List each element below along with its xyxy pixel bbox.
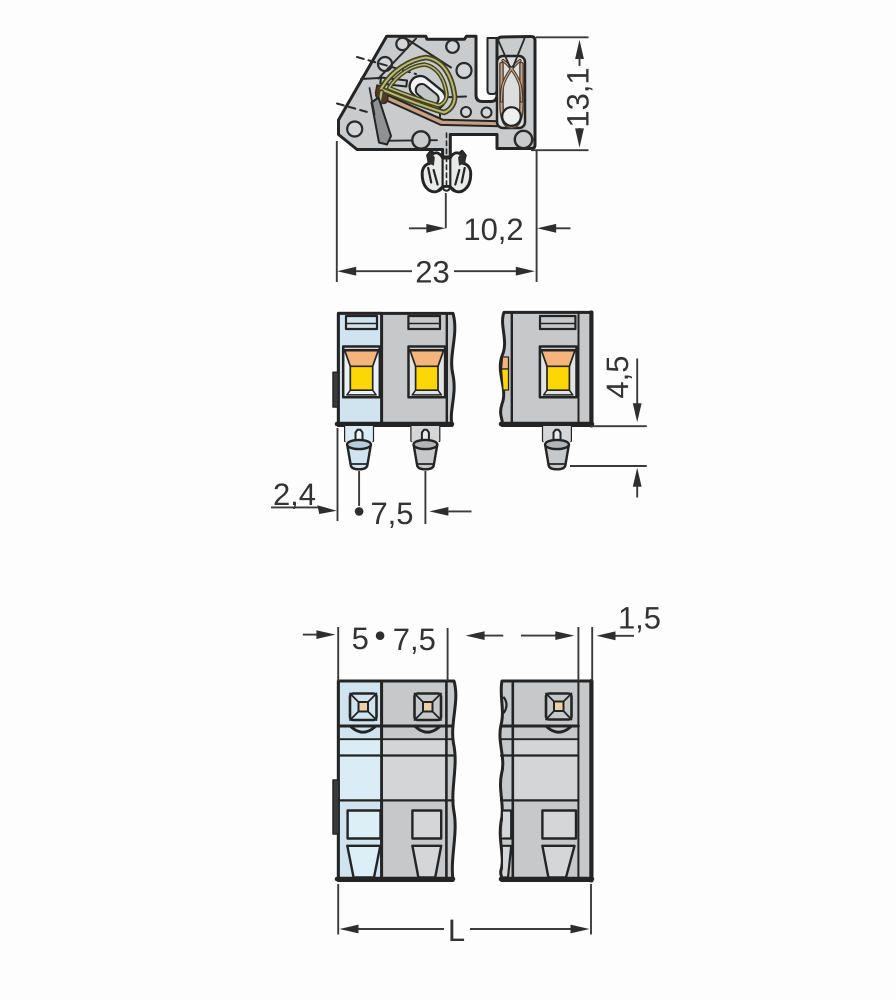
svg-text:7,5: 7,5 [393, 622, 436, 657]
svg-text:7,5: 7,5 [370, 496, 413, 531]
svg-text:L: L [448, 913, 465, 948]
svg-text:1,5: 1,5 [618, 601, 661, 636]
svg-text:4,5: 4,5 [600, 355, 635, 398]
svg-text:10,2: 10,2 [463, 212, 523, 247]
svg-text:13,1: 13,1 [561, 67, 596, 127]
svg-text:23: 23 [415, 255, 449, 290]
svg-text:5: 5 [352, 621, 369, 656]
